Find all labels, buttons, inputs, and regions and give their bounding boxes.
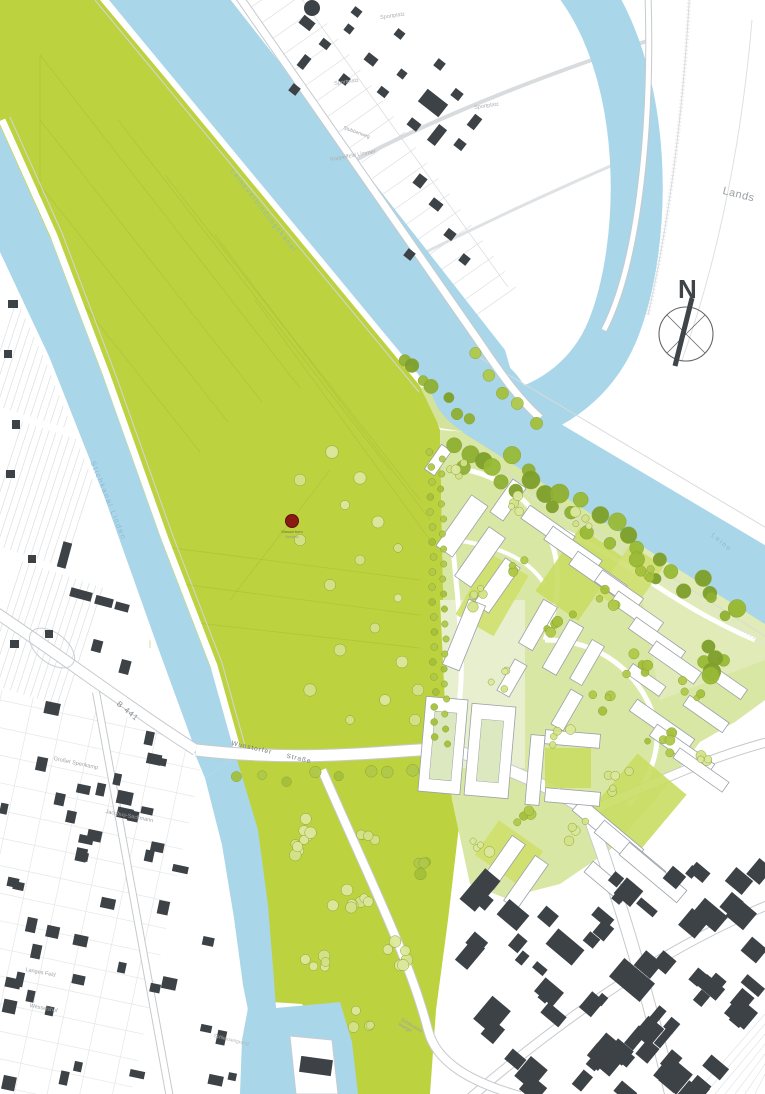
marker-label-line2: Bestand [276,535,308,539]
compass-rose [659,298,713,366]
site-marker [286,515,299,528]
site-plan-map: Leineverbindungskanal Stichkanal Linden … [0,0,765,1094]
lock-structures-layer [290,1036,338,1094]
marker-label: Wasserturm Bestand [276,530,308,539]
compass-north-label: N [678,276,697,303]
map-canvas [0,0,765,1094]
